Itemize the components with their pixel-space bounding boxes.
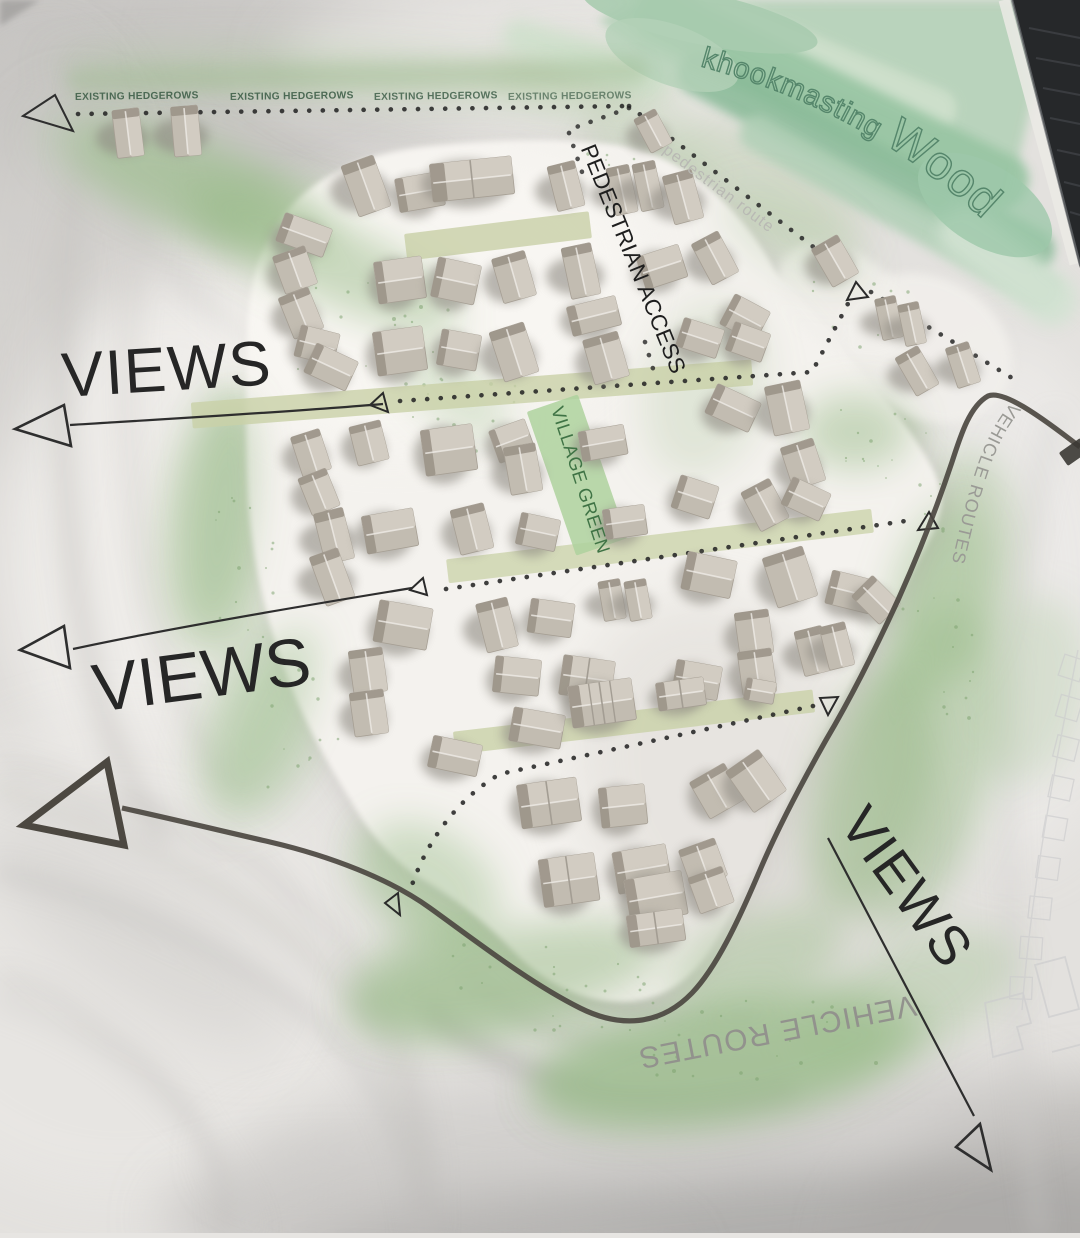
svg-text:EXISTING HEDGEROWS: EXISTING HEDGEROWS	[508, 90, 632, 103]
svg-text:VIEWS: VIEWS	[60, 328, 274, 411]
svg-text:EXISTING HEDGEROWS: EXISTING HEDGEROWS	[230, 90, 354, 103]
svg-text:EXISTING HEDGEROWS: EXISTING HEDGEROWS	[374, 90, 498, 103]
svg-text:EXISTING HEDGEROWS: EXISTING HEDGEROWS	[75, 90, 199, 103]
